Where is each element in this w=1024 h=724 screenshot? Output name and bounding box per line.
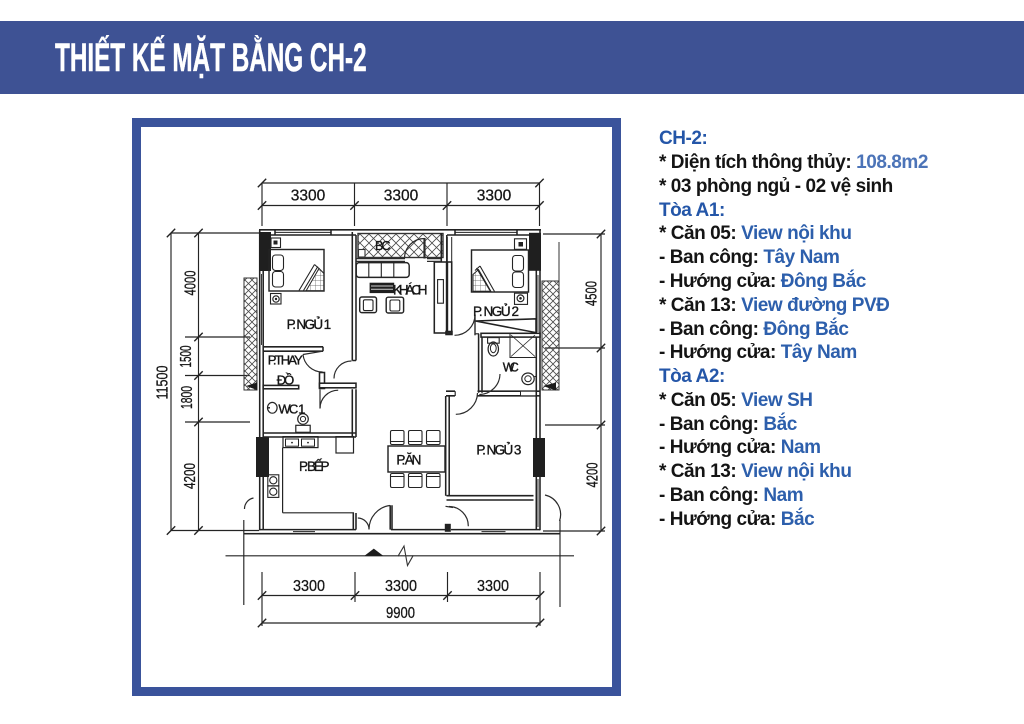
- svg-text:4200: 4200: [585, 462, 602, 487]
- svg-text:P. NGỦ 3: P. NGỦ 3: [476, 443, 521, 458]
- svg-text:3300: 3300: [477, 188, 512, 205]
- svg-text:P. NGỦ 2: P. NGỦ 2: [473, 304, 519, 319]
- svg-text:3300: 3300: [385, 578, 417, 595]
- svg-text:3300: 3300: [291, 188, 326, 205]
- svg-text:P. ĂN: P. ĂN: [396, 453, 421, 468]
- svg-text:BC: BC: [375, 239, 391, 253]
- svg-text:P.THAY: P.THAY: [268, 353, 303, 368]
- svg-text:P. BẾP: P. BẾP: [299, 459, 330, 474]
- svg-text:4000: 4000: [183, 270, 200, 295]
- svg-text:4500: 4500: [584, 281, 601, 306]
- svg-text:P. NGỦ 1: P. NGỦ 1: [287, 317, 332, 332]
- svg-text:KHÁCH: KHÁCH: [393, 283, 428, 298]
- svg-text:9900: 9900: [386, 605, 415, 622]
- svg-text:3300: 3300: [384, 188, 419, 205]
- svg-text:11500: 11500: [155, 365, 172, 399]
- svg-text:4200: 4200: [182, 463, 199, 489]
- svg-text:3300: 3300: [293, 578, 325, 595]
- svg-text:WC: WC: [503, 361, 519, 375]
- svg-text:WC 1: WC 1: [278, 401, 305, 416]
- svg-text:1500: 1500: [178, 345, 195, 367]
- svg-text:1800: 1800: [179, 386, 196, 409]
- svg-text:3300: 3300: [477, 578, 509, 595]
- svg-text:ĐỒ: ĐỒ: [277, 373, 295, 388]
